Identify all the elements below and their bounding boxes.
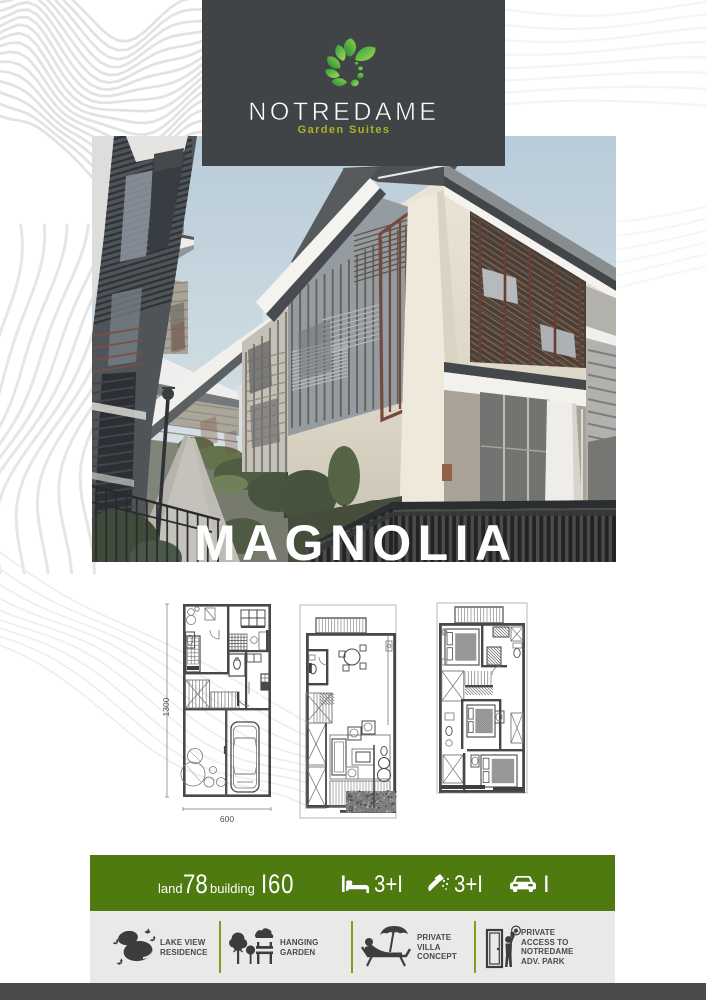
- svg-text:1300: 1300: [161, 697, 171, 716]
- svg-text:600: 600: [220, 814, 234, 824]
